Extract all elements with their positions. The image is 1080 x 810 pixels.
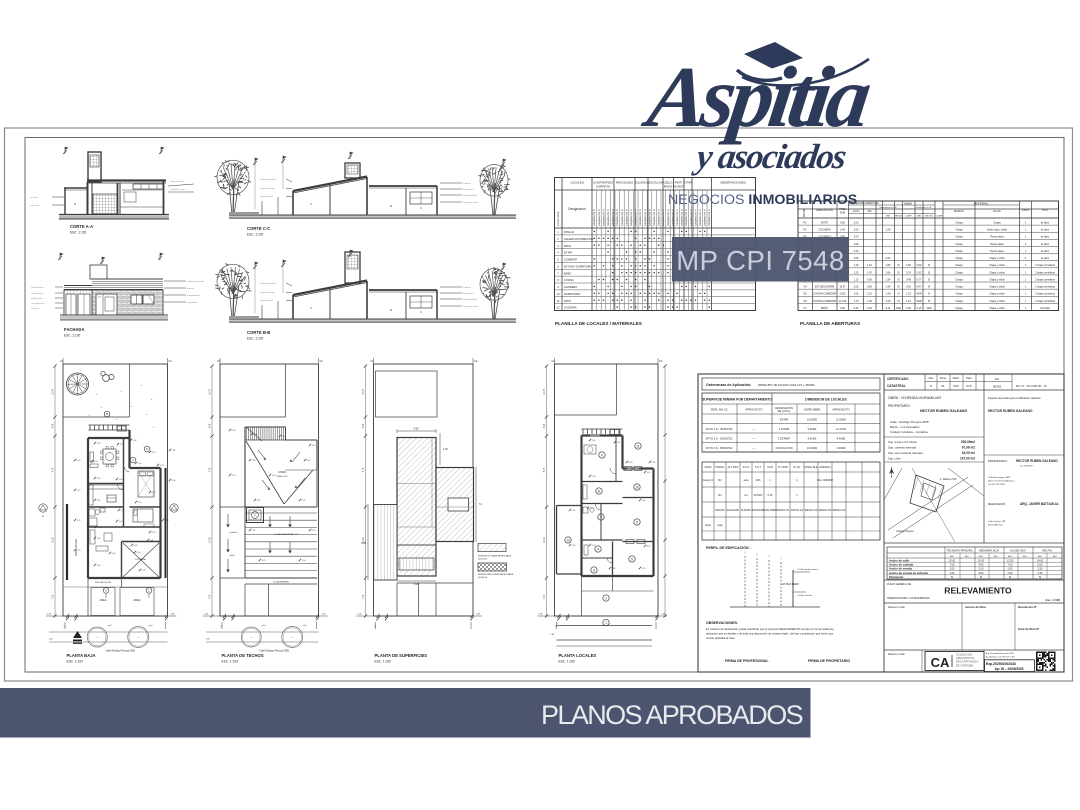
- svg-text:PLANOS APROBADOS: PLANOS APROBADOS: [541, 700, 803, 730]
- svg-text:Ciudad: Córdoba – Córdoba: Ciudad: Córdoba – Córdoba: [890, 430, 928, 434]
- svg-text:1: 1: [796, 478, 798, 482]
- svg-text:ESCALERA: ESCALERA: [727, 509, 740, 512]
- svg-text:2 hojas corredizas: 2 hojas corredizas: [1035, 264, 1056, 267]
- svg-text:OBSERVACIONES: OBSERVACIONES: [720, 181, 746, 185]
- svg-text:4.25: 4.25: [312, 445, 316, 447]
- svg-text:-: -: [888, 250, 889, 253]
- svg-text:----: ----: [752, 428, 756, 431]
- svg-text:6: 6: [557, 264, 559, 268]
- svg-text:1: 1: [1025, 250, 1027, 253]
- svg-text:6: 6: [636, 520, 638, 524]
- svg-text:·+: ·+: [115, 418, 118, 421]
- svg-text:-: -: [908, 250, 909, 253]
- svg-text:avia: avia: [744, 478, 749, 482]
- svg-text:2.10: 2.10: [77, 490, 81, 492]
- svg-text:RIESGO 4/5: RIESGO 4/5: [833, 510, 846, 512]
- svg-text:PLANILLA DE LOCALES / MATERIAL: PLANILLA DE LOCALES / MATERIALES: [555, 321, 642, 326]
- svg-text:1 DORM: 1 DORM: [779, 427, 789, 431]
- svg-text:RELEVADOR: RELEVADOR: [988, 502, 1005, 506]
- svg-text:Iluminacion b V S: Iluminacion b V S: [879, 207, 897, 209]
- svg-text:208,09m2: 208,09m2: [961, 440, 975, 444]
- svg-text:+: +: [291, 635, 293, 639]
- svg-text:10: 10: [635, 485, 639, 489]
- svg-text:-: -: [898, 243, 899, 246]
- svg-text:R2: R2: [718, 493, 722, 497]
- svg-text:0.64: 0.64: [886, 257, 891, 260]
- svg-text:3.50: 3.50: [97, 443, 101, 445]
- svg-text:carpinteria alum: carpinteria alum: [463, 305, 479, 308]
- svg-text:7.00: 7.00: [1008, 563, 1014, 567]
- svg-text:COLEGIO DE: COLEGIO DE: [956, 653, 972, 657]
- svg-text:2.10: 2.10: [232, 475, 236, 477]
- svg-text:ESTAR: ESTAR: [564, 252, 572, 255]
- svg-text:7.4: 7.4: [479, 503, 483, 506]
- svg-text:-: -: [929, 222, 930, 225]
- svg-text:Puerta placa: Puerta placa: [990, 243, 1004, 246]
- svg-text:9.00M2: 9.00M2: [808, 437, 817, 441]
- svg-text:7.20: 7.20: [210, 594, 212, 599]
- svg-text:SI: SI: [928, 286, 931, 289]
- svg-text:4.95: 4.95: [363, 423, 365, 428]
- svg-text:cubierta inclinada: cubierta inclinada: [187, 280, 205, 283]
- svg-text:0.90: 0.90: [917, 264, 922, 267]
- svg-text:carpeta niv h: carpeta niv h: [698, 209, 702, 226]
- svg-text:Chapa y vidrio: Chapa y vidrio: [989, 264, 1005, 267]
- svg-text:A: A: [310, 202, 312, 206]
- svg-text:carpeta niv h: carpeta niv h: [620, 209, 624, 226]
- svg-text:1.20: 1.20: [592, 476, 596, 478]
- svg-text:arbol: arbol: [261, 624, 266, 627]
- svg-text:pj/dg: pj/dg: [718, 525, 724, 527]
- svg-text:1: 1: [1025, 278, 1027, 281]
- svg-text:11.47M2: 11.47M2: [836, 427, 847, 431]
- svg-text:ESTAR: ESTAR: [780, 418, 789, 422]
- svg-text:MEDIANERA HOJA: MEDIANERA HOJA: [979, 550, 999, 553]
- svg-text:11: 11: [557, 299, 560, 303]
- svg-text:premoldeado: premoldeado: [187, 294, 201, 297]
- svg-text:4.00: 4.00: [979, 563, 985, 567]
- svg-text:Dni 11876517: Dni 11876517: [1020, 466, 1034, 468]
- svg-text:-: -: [869, 243, 870, 246]
- svg-text:carpeta niv h: carpeta niv h: [615, 209, 619, 226]
- svg-text:4.25: 4.25: [134, 545, 138, 547]
- svg-text:Calle Rodrigo Pereyra 2655: Calle Rodrigo Pereyra 2655: [259, 650, 289, 653]
- svg-text:Parc: Parc: [966, 376, 972, 380]
- svg-text:COCHERA: COCHERA: [135, 558, 146, 561]
- svg-text:+0.30m Vereda: +0.30m Vereda: [797, 594, 813, 597]
- svg-text:AREA: AREA: [904, 202, 912, 206]
- svg-text:40%: 40%: [755, 478, 761, 482]
- svg-text:2 hojas corredizas: 2 hojas corredizas: [1035, 286, 1056, 289]
- svg-text:-: -: [888, 243, 889, 246]
- svg-text:1.70: 1.70: [854, 300, 859, 303]
- svg-text:Desig m2: Desig m2: [703, 480, 714, 482]
- svg-text:12.75: 12.75: [210, 388, 212, 394]
- svg-text:SI: SI: [897, 300, 900, 303]
- svg-text:-: -: [898, 257, 899, 260]
- svg-text:Chapa: Chapa: [955, 236, 963, 239]
- svg-text:ESC. 1:100: ESC. 1:100: [247, 233, 264, 237]
- svg-text:E: E: [105, 590, 107, 593]
- svg-text:Chapa y vidrio: Chapa y vidrio: [989, 293, 1005, 296]
- svg-text:DE LOCAL: DE LOCAL: [778, 409, 791, 413]
- svg-text:----: ----: [752, 447, 756, 450]
- svg-text:2 hojas corredizas: 2 hojas corredizas: [1035, 271, 1056, 274]
- svg-text:0.90: 0.90: [840, 307, 845, 310]
- svg-text:ARQUITECTOS: ARQUITECTOS: [956, 656, 975, 660]
- svg-text:1.10: 1.10: [854, 278, 859, 281]
- svg-text:MC: 07 : 18 LOTE OF. : 15: MC: 07 : 18 LOTE OF. : 15: [1016, 384, 1047, 388]
- svg-text:Chapa y vidrio: Chapa y vidrio: [989, 257, 1005, 260]
- svg-text:4.95: 4.95: [53, 423, 55, 428]
- svg-text:carpeta niv h: carpeta niv h: [707, 209, 711, 226]
- svg-text:carpeta niv h: carpeta niv h: [643, 209, 647, 226]
- svg-text:SGRL S/H 2S: SGRL S/H 2S: [711, 408, 728, 412]
- svg-text:10.00: 10.00: [949, 558, 956, 562]
- svg-text:Chapa y vidrio: Chapa y vidrio: [989, 278, 1005, 281]
- svg-text:1.47: 1.47: [867, 271, 872, 274]
- svg-text:cielorraso susp: cielorraso susp: [260, 187, 275, 190]
- svg-text:2.60: 2.60: [152, 492, 156, 494]
- svg-text:1: 1: [769, 478, 771, 482]
- svg-text:10: 10: [557, 292, 560, 296]
- svg-text:SI: SI: [928, 271, 931, 274]
- svg-text:NECES: NECES: [925, 216, 933, 218]
- svg-text:16,00 m2: 16,00 m2: [962, 451, 976, 455]
- svg-text:|: |: [781, 556, 782, 560]
- svg-text:1: 1: [1025, 229, 1027, 232]
- svg-text:-: -: [919, 222, 920, 225]
- svg-text:·+: ·+: [130, 405, 133, 408]
- svg-text:Esc. 1:100: Esc. 1:100: [1046, 598, 1061, 602]
- svg-text:PINT/: PINT/: [675, 181, 683, 185]
- svg-text:Alto: Alto: [867, 210, 872, 213]
- svg-text:2.00: 2.00: [979, 567, 985, 571]
- svg-text:1.90: 1.90: [886, 293, 891, 296]
- svg-text:carpeta niv h: carpeta niv h: [693, 209, 697, 226]
- svg-text:·+: ·+: [100, 406, 103, 409]
- svg-text:RIESGO 3/4: RIESGO 3/4: [819, 510, 832, 512]
- svg-text:SI: SI: [897, 286, 900, 289]
- svg-text:SEC: SEC: [979, 556, 984, 558]
- svg-text:6.95: 6.95: [252, 530, 256, 532]
- svg-text:8.75: 8.75: [363, 467, 365, 472]
- svg-text:SI: SI: [1009, 575, 1012, 579]
- svg-text:CARPETA: CARPETA: [596, 185, 610, 189]
- svg-text:OBSERVACIONES:: OBSERVACIONES:: [706, 621, 738, 625]
- svg-text:ESC. 1:100: ESC. 1:100: [559, 660, 576, 664]
- svg-text:MP CPI 7548: MP CPI 7548: [676, 245, 845, 276]
- svg-text:12: 12: [566, 538, 570, 542]
- svg-text:L.M.: L.M.: [171, 614, 176, 616]
- svg-text:de abrir: de abrir: [1041, 236, 1049, 239]
- svg-text:CERTIFICADO: CERTIFICADO: [887, 377, 909, 381]
- svg-text:Ap: 00 – 03/09/2025: Ap: 00 – 03/09/2025: [995, 667, 1024, 671]
- svg-text:Dist: Dist: [929, 376, 934, 380]
- svg-text:ALT MAX PERM: ALT MAX PERM: [781, 583, 798, 586]
- svg-text:01: 01: [941, 384, 945, 388]
- svg-text:Pavimento: Pavimento: [889, 575, 904, 579]
- svg-text:carpeta niv h: carpeta niv h: [670, 209, 674, 226]
- svg-text:Chapa: Chapa: [955, 307, 963, 310]
- svg-text:COCINA-COMEDOR: COCINA-COMEDOR: [813, 300, 836, 303]
- svg-text:4.25: 4.25: [77, 520, 81, 522]
- svg-text:1.80: 1.80: [886, 264, 891, 267]
- svg-text:-: -: [869, 236, 870, 239]
- svg-text:CORTE B-B: CORTE B-B: [247, 330, 270, 335]
- svg-text:4.25: 4.25: [647, 472, 651, 474]
- svg-text:corrediza: corrediza: [1040, 307, 1051, 310]
- svg-text:LOSA VEREDA: LOSA VEREDA: [273, 581, 289, 584]
- svg-text:10.00M2: 10.00M2: [807, 418, 818, 422]
- svg-text:cub chapa pend: cub chapa pend: [260, 179, 276, 181]
- svg-text:SI: SI: [928, 300, 931, 303]
- svg-text:L.M.: L.M.: [49, 639, 53, 641]
- svg-text:ESC. 1:100: ESC. 1:100: [67, 660, 84, 664]
- svg-text:carpeta niv h: carpeta niv h: [652, 209, 656, 226]
- svg-text:cubierta chapa: cubierta chapa: [170, 180, 185, 183]
- svg-text:1.20: 1.20: [854, 264, 859, 267]
- svg-text:S2/ED/U2: S2/ED/U2: [819, 465, 831, 469]
- svg-text:TQ: TQ: [253, 515, 256, 517]
- svg-text:premoldeado h: premoldeado h: [463, 298, 478, 301]
- svg-text:P: P: [121, 428, 123, 431]
- svg-text:cielorraso susp: cielorraso susp: [170, 188, 185, 191]
- svg-text:DESIG: DESIG: [802, 208, 806, 217]
- svg-text:CHAPA: CHAPA: [278, 471, 286, 474]
- svg-text:canaleta: canaleta: [229, 531, 238, 534]
- svg-text:1: 1: [1025, 271, 1027, 274]
- svg-text:CA: CA: [169, 360, 173, 363]
- svg-text:carpeta niv h: carpeta niv h: [684, 209, 688, 226]
- svg-text:PATIO: PATIO: [564, 245, 571, 248]
- svg-text:Sup. terreno s/d s/Folio: Sup. terreno s/d s/Folio: [888, 440, 917, 444]
- svg-text:1: 1: [1025, 293, 1027, 296]
- svg-text:carpeta niv h: carpeta niv h: [624, 209, 628, 226]
- svg-text:----: ----: [752, 438, 756, 441]
- svg-text:F.O.S: F.O.S: [743, 465, 750, 469]
- svg-text:-: -: [929, 243, 930, 246]
- svg-text:2.00: 2.00: [950, 571, 956, 575]
- svg-text:Tel 351 226 1902: Tel 351 226 1902: [988, 484, 1006, 486]
- svg-text:2.00: 2.00: [854, 257, 859, 260]
- svg-text:DE CORDOBA: DE CORDOBA: [956, 663, 973, 667]
- svg-text:PECINDARO PRINCIPAL: PECINDARO PRINCIPAL: [947, 550, 973, 553]
- svg-text:ALT MAX: ALT MAX: [728, 465, 739, 469]
- svg-text:CUMP: CUMP: [905, 216, 912, 218]
- svg-text:D: D: [146, 448, 148, 451]
- svg-text:-: -: [869, 222, 870, 225]
- svg-text:·+: ·+: [145, 413, 148, 416]
- svg-text:1: 1: [557, 230, 559, 234]
- svg-text:0.74: 0.74: [906, 271, 911, 274]
- svg-text:9: 9: [601, 453, 603, 457]
- svg-text:BAÑO: BAÑO: [564, 272, 571, 275]
- svg-text:SI: SI: [897, 293, 900, 296]
- svg-text:resulte aplicable al caso.: resulte aplicable al caso.: [706, 636, 736, 640]
- svg-text:H: H: [930, 384, 932, 388]
- svg-text:FIRMA DE PROPIETARIO: FIRMA DE PROPIETARIO: [808, 659, 850, 663]
- svg-text:NEGOCIOS INMOBILIARIOS: NEGOCIOS INMOBILIARIOS: [668, 192, 857, 208]
- svg-text:carpeta niv h: carpeta niv h: [638, 209, 642, 226]
- svg-text:2.00M2: 2.00M2: [837, 446, 846, 450]
- svg-text:Chapa y vidrio: Chapa y vidrio: [989, 271, 1005, 274]
- svg-text:Dist. 025/M/M: Dist. 025/M/M: [817, 478, 833, 482]
- svg-text:+: +: [137, 635, 139, 639]
- svg-text:8.75: 8.75: [544, 467, 546, 472]
- svg-text:LAVADERO: LAVADERO: [564, 286, 577, 289]
- svg-text:3: 3: [593, 568, 595, 572]
- svg-text:CA: CA: [320, 360, 324, 363]
- svg-text:3.50: 3.50: [592, 440, 596, 442]
- svg-text:HECTOR RUBEN GALEANO: HECTOR RUBEN GALEANO: [920, 409, 967, 413]
- svg-text:Chapa: Chapa: [955, 278, 963, 281]
- svg-text:-: -: [869, 257, 870, 260]
- svg-text:Chapa: Chapa: [955, 300, 963, 303]
- svg-text:TIPO: TIPO: [1042, 208, 1049, 212]
- svg-text:DIMENSION DE LOCALES: DIMENSION DE LOCALES: [805, 398, 847, 402]
- svg-text:0.77: 0.77: [917, 278, 922, 281]
- svg-text:PLANTA DE TECHOS: PLANTA DE TECHOS: [222, 653, 264, 658]
- svg-text:2 hojas corredizas: 2 hojas corredizas: [1035, 300, 1056, 303]
- svg-text:Espacio reservado para certifi: Espacio reservado para certificación cat…: [988, 396, 1041, 400]
- svg-text:Final de Obra Nº: Final de Obra Nº: [1018, 627, 1039, 631]
- svg-text:9.05: 9.05: [361, 542, 366, 545]
- svg-text:Ancho: Ancho: [853, 210, 860, 213]
- svg-text:REVEST: REVEST: [673, 185, 684, 189]
- svg-text:3.00: 3.00: [979, 571, 985, 575]
- svg-text:2.20: 2.20: [854, 250, 859, 253]
- svg-text:Calle Bv mayajon 5897: Calle Bv mayajon 5897: [988, 477, 1011, 479]
- svg-text:Chapa y vidrio: Chapa y vidrio: [989, 307, 1005, 310]
- svg-text:2.00: 2.00: [854, 229, 859, 232]
- svg-text:1.54: 1.54: [886, 278, 891, 281]
- svg-text:RASO: RASO: [664, 185, 673, 189]
- svg-text:1.10: 1.10: [867, 264, 872, 267]
- svg-text:cubierta: cubierta: [463, 286, 472, 289]
- svg-text:0.45: 0.45: [768, 493, 774, 497]
- svg-text:2.00: 2.00: [854, 243, 859, 246]
- svg-text:3.05: 3.05: [172, 450, 176, 452]
- svg-text:VER: VER: [916, 300, 921, 303]
- svg-text:67,06 m2: 67,06 m2: [962, 446, 976, 450]
- svg-text:cielorraso susp: cielorraso susp: [260, 291, 275, 294]
- svg-text:3.50: 3.50: [77, 460, 81, 462]
- svg-text:RATIOS 2/3: RATIOS 2/3: [791, 509, 804, 512]
- svg-text:carpeta niv h: carpeta niv h: [592, 209, 596, 226]
- svg-text:CA: CA: [931, 655, 950, 670]
- svg-text:12.75: 12.75: [53, 388, 55, 394]
- svg-text:-: -: [898, 236, 899, 239]
- svg-text:7: 7: [557, 271, 559, 275]
- svg-text:REG PAS: REG PAS: [1042, 550, 1052, 553]
- svg-text:L.M.: L.M.: [322, 614, 327, 616]
- svg-text:Desig: Desig: [705, 525, 712, 527]
- svg-text:7: 7: [600, 515, 602, 519]
- svg-text:Manz: Manz: [953, 376, 960, 380]
- svg-text:0.97: 0.97: [917, 286, 922, 289]
- svg-text:L.M.: L.M.: [47, 614, 52, 616]
- svg-text:Calle Gavilan 783: Calle Gavilan 783: [988, 521, 1006, 523]
- svg-text:·+: ·+: [88, 414, 91, 417]
- svg-text:B: B: [106, 412, 108, 416]
- svg-text:F/A: F/A: [995, 377, 999, 381]
- svg-text:F.O.T: F.O.T: [755, 465, 762, 469]
- svg-text:12: 12: [557, 306, 560, 310]
- svg-text:2.00: 2.00: [854, 236, 859, 239]
- svg-text:SUPERF DE CUBIERTA RELEVADA: SUPERF DE CUBIERTA RELEVADA: [478, 555, 512, 558]
- svg-text:SEC: SEC: [1023, 556, 1028, 558]
- svg-text:carpinteria: carpinteria: [187, 301, 198, 304]
- svg-text:C. Matheu 763: C. Matheu 763: [940, 477, 957, 481]
- svg-text:(16.00m2): (16.00m2): [478, 577, 487, 579]
- svg-text:-: -: [919, 243, 920, 246]
- svg-text:1.10: 1.10: [906, 300, 911, 303]
- svg-text:PISO ADOQUIN: PISO ADOQUIN: [95, 581, 111, 584]
- svg-text:Chapa: Chapa: [955, 243, 963, 246]
- svg-text:NECES: NECES: [895, 216, 903, 218]
- svg-text:Chapa y vidrio: Chapa y vidrio: [989, 300, 1005, 303]
- svg-text:carpeta niv h: carpeta niv h: [703, 209, 707, 226]
- svg-text:Barrio : Los Granados: Barrio : Los Granados: [890, 425, 920, 429]
- svg-text:OLM BSC: OLM BSC: [741, 510, 752, 512]
- svg-text:2.10: 2.10: [590, 508, 594, 510]
- svg-text:ESC. 1:100: ESC. 1:100: [375, 660, 392, 664]
- svg-text:Chapa: Chapa: [955, 293, 963, 296]
- svg-text:DE LA PROVINCIA: DE LA PROVINCIA: [956, 660, 978, 664]
- svg-text:carpeta niv h: carpeta niv h: [634, 209, 638, 226]
- svg-text:4: 4: [557, 251, 559, 255]
- svg-text:1: 1: [1025, 236, 1027, 239]
- svg-text:Dispuso p/ sello: Dispuso p/ sello: [888, 653, 906, 656]
- svg-text:7.20: 7.20: [363, 594, 365, 599]
- svg-text:Chapa: Chapa: [955, 229, 963, 232]
- svg-text:carpinteria alum: carpinteria alum: [463, 201, 479, 204]
- svg-text:COCINA-COMEDOR: COCINA-COMEDOR: [813, 293, 836, 296]
- svg-text:RIESGO 2/3: RIESGO 2/3: [805, 510, 818, 512]
- svg-text:REVOQUES: REVOQUES: [616, 181, 633, 185]
- svg-text:10.00: 10.00: [978, 558, 985, 562]
- svg-text:L.M.: L.M.: [476, 614, 481, 616]
- svg-text:OBSERVACIONES Y ANTECEDENTES: OBSERVACIONES Y ANTECEDENTES: [887, 597, 930, 600]
- svg-text:B: B: [390, 308, 392, 312]
- svg-text:4.95: 4.95: [210, 423, 212, 428]
- svg-text:aplicación que se detalla, y: aplicación que se detalla, y de toda otr…: [706, 632, 834, 636]
- svg-text:2.10: 2.10: [120, 444, 124, 446]
- svg-text:ESC. 1:100: ESC. 1:100: [247, 337, 264, 341]
- svg-text:1.90: 1.90: [302, 500, 306, 502]
- svg-text:VER: VER: [926, 307, 931, 310]
- svg-text:0.90: 0.90: [840, 222, 845, 225]
- svg-text:L.M.: L.M.: [204, 614, 209, 616]
- svg-text:CUMP: CUMP: [936, 216, 943, 218]
- svg-text:CA: CA: [474, 360, 478, 363]
- svg-text:2.10: 2.10: [119, 521, 123, 523]
- svg-text:|: |: [769, 554, 770, 558]
- svg-text:GALERIA DISTRIBUCION: GALERIA DISTRIBUCION: [564, 238, 594, 241]
- svg-text:C: C: [132, 459, 134, 462]
- svg-text:OBRA : VIVIENDA UNIFAMILIAR: OBRA : VIVIENDA UNIFAMILIAR: [888, 396, 942, 400]
- svg-text:COCHERA: COCHERA: [564, 307, 577, 310]
- svg-text:-: -: [888, 222, 889, 225]
- svg-text:8: 8: [557, 278, 559, 282]
- svg-text:Rodrigo Pereyra: Rodrigo Pereyra: [897, 530, 915, 533]
- svg-text:8256E 857.1B 1024/20 1031.1: 8256E 857.1B 1024/20 1031.137 y 463/80: [758, 383, 815, 387]
- svg-text:Chapa: Chapa: [955, 250, 963, 253]
- svg-text:-: -: [919, 250, 920, 253]
- svg-text:Doble hoja y vidrio: Doble hoja y vidrio: [987, 229, 1008, 232]
- svg-text:carpeta niv h: carpeta niv h: [666, 209, 670, 226]
